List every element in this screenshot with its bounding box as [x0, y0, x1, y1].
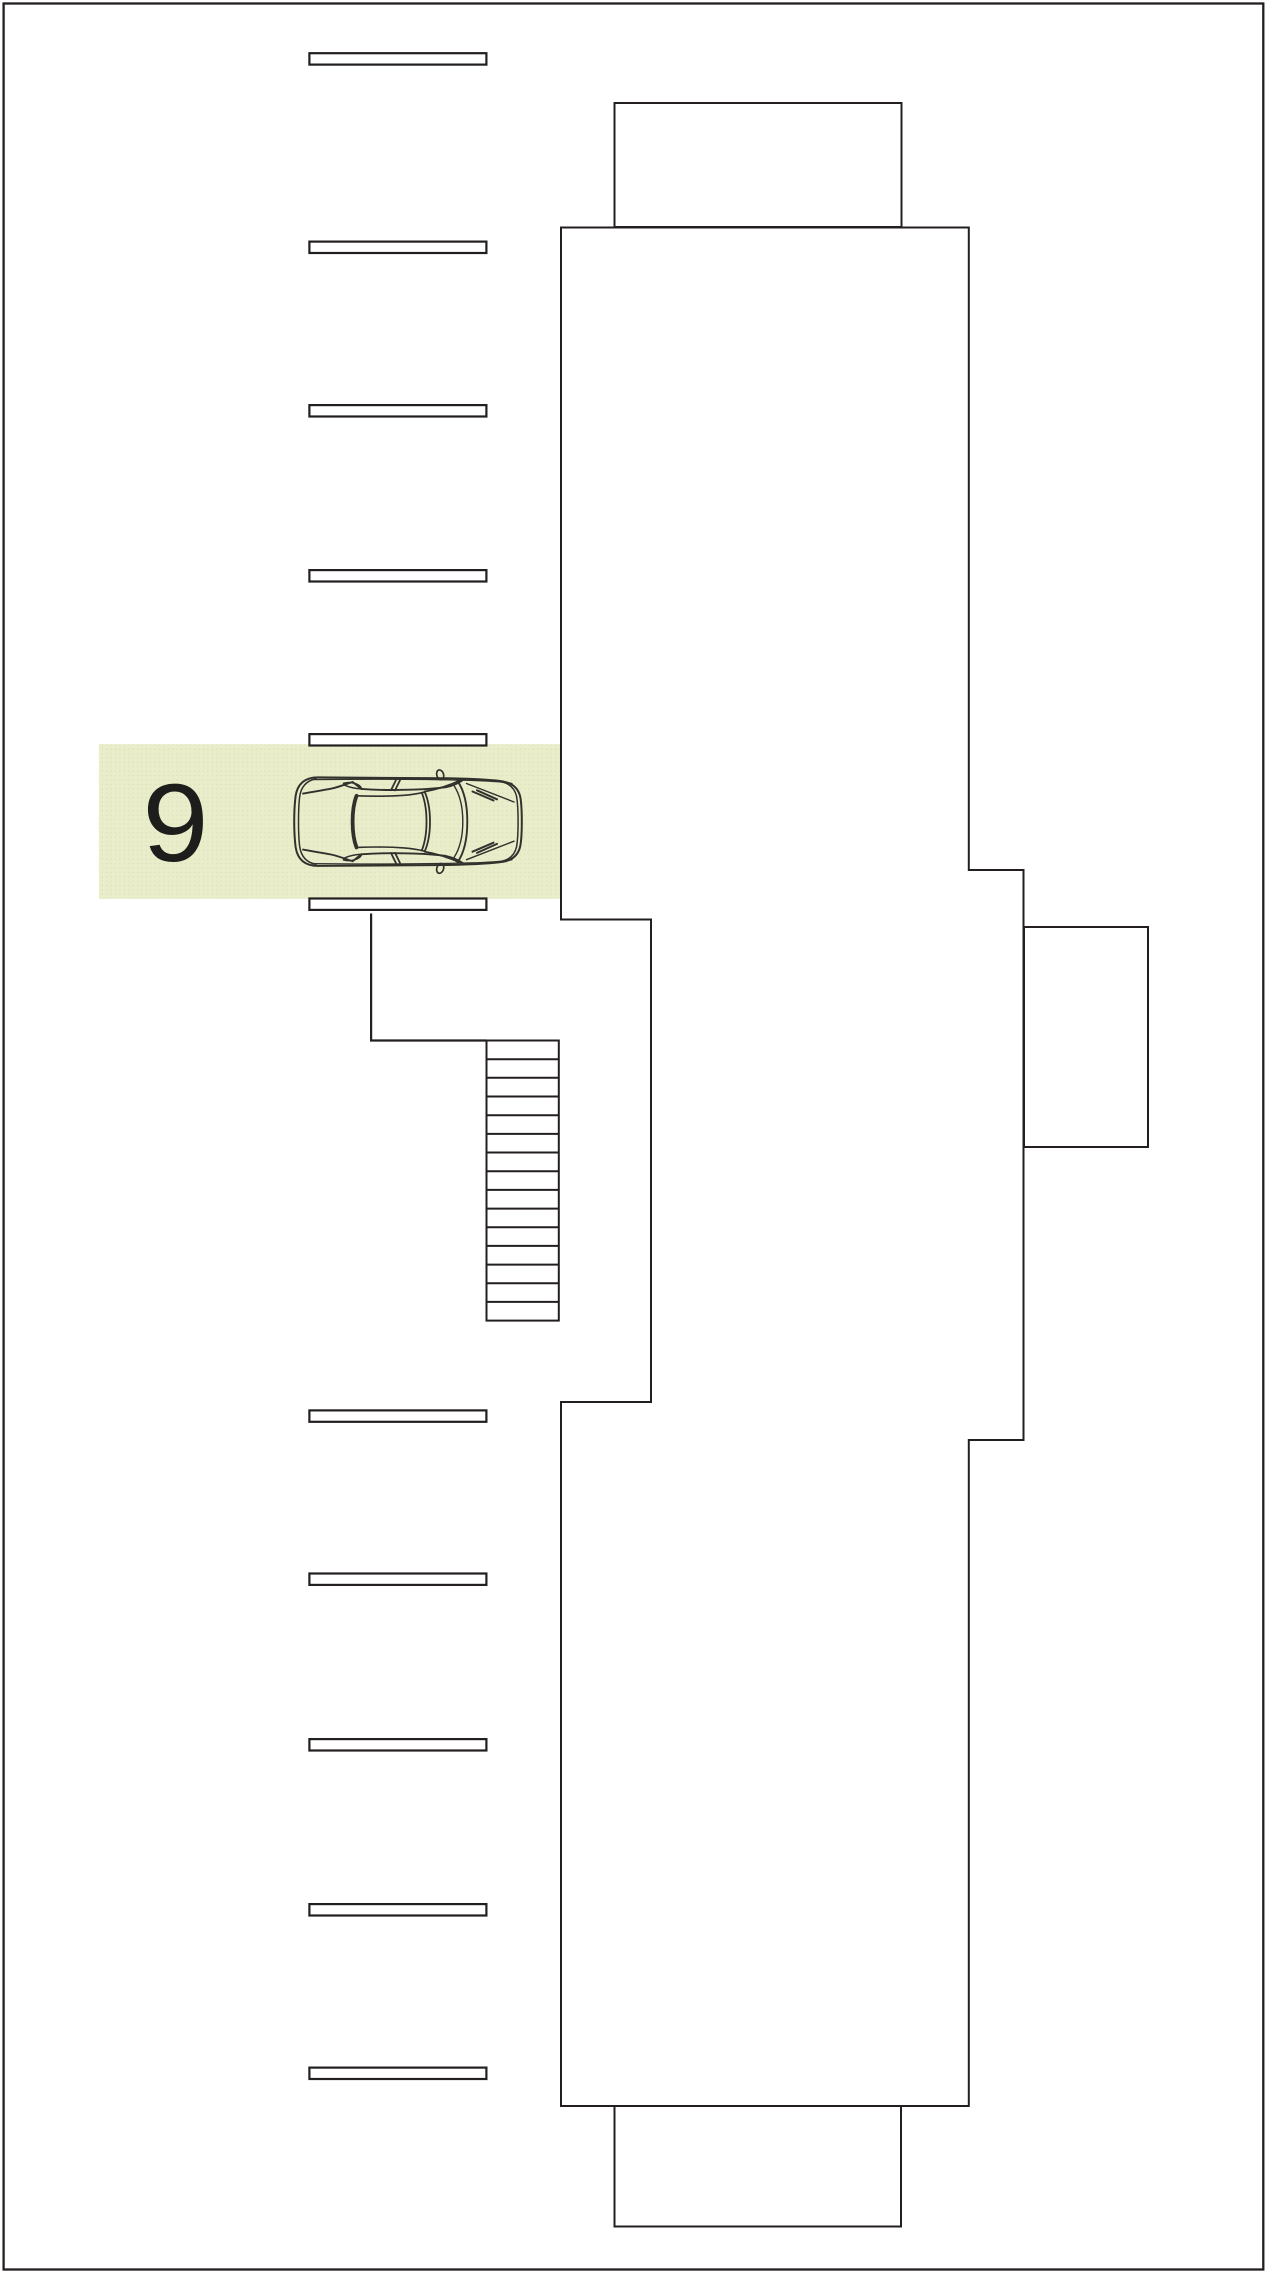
svg-text:9: 9: [142, 762, 208, 885]
